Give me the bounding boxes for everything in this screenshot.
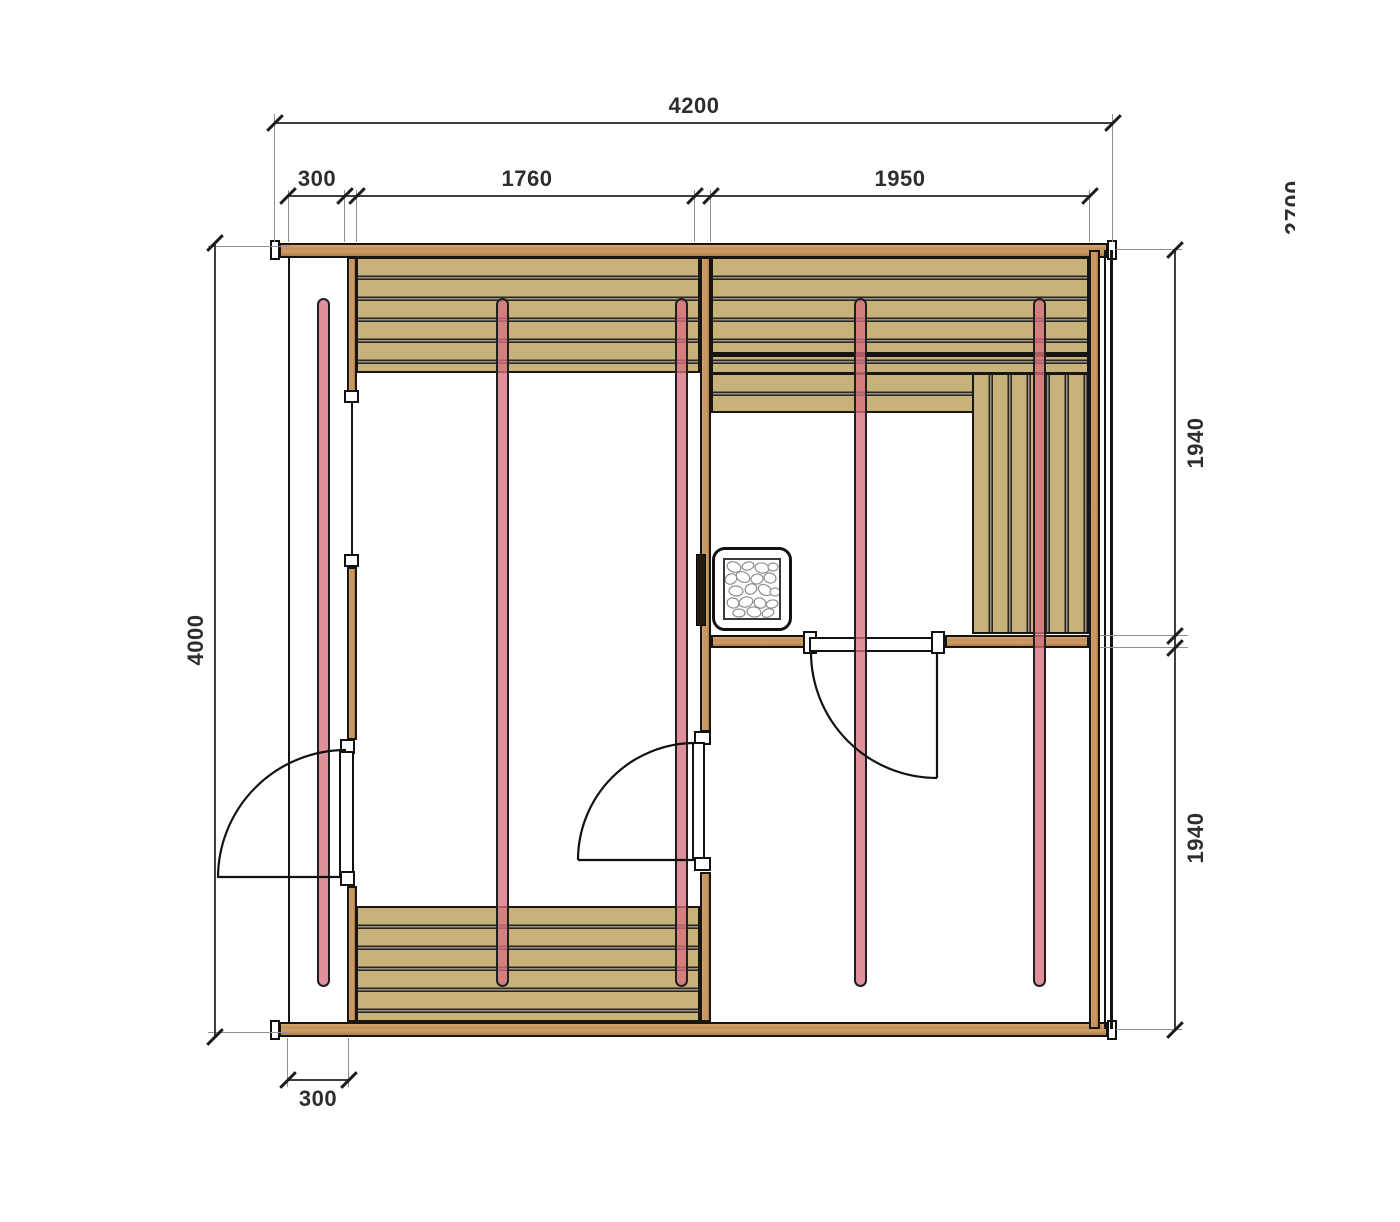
top-wall-left-cap (270, 240, 280, 260)
dim-label-clipped-wrapper: 2700 (1280, 140, 1295, 237)
bottom-wall-log (279, 1022, 1108, 1037)
sauna-door-leaf (809, 637, 937, 652)
dim-label-right-lower: 1940 (1183, 813, 1209, 864)
dim-label-bottom-offset: 300 (299, 1086, 337, 1112)
sauna-heater (712, 547, 792, 631)
interior-wall-vertical-lower (700, 872, 711, 1022)
ext-line-left-top (208, 246, 290, 247)
left-wall-post-lower (347, 886, 357, 1022)
dim-label-left-offset: 300 (298, 166, 336, 192)
interior-wall-vertical-upper (700, 257, 711, 732)
left-wall-cap-2 (344, 554, 359, 567)
dim-label-room-left: 1760 (502, 166, 553, 192)
interior-wall-horizontal-east (945, 635, 1089, 648)
dim-label-total-width: 4200 (669, 93, 720, 119)
top-wall-log (279, 243, 1108, 258)
right-wall (1089, 250, 1100, 1029)
dim-line-top-total (275, 122, 1113, 124)
heater-stones-icon (725, 560, 779, 618)
bench-top-right-lower-tier (711, 373, 974, 413)
dim-label-total-depth: 4000 (183, 615, 209, 666)
middle-door-leaf (692, 742, 705, 860)
right-outer-face-line-1 (1104, 250, 1106, 1029)
heater-heat-shield (696, 554, 706, 626)
glass-panel-strip-1 (317, 298, 330, 987)
bench-right-vertical (972, 373, 1089, 634)
left-wall-post-middle (347, 567, 357, 740)
ext-line-top-right (1112, 114, 1113, 242)
heater-stone-basket (723, 558, 781, 620)
dim-label-clipped-side: 2700 (1280, 180, 1295, 235)
bottom-wall-left-cap (270, 1020, 280, 1040)
right-outer-face-line-2 (1110, 250, 1113, 1029)
glass-panel-strip-2 (496, 298, 509, 987)
interior-wall-horizontal-west (711, 635, 806, 648)
sauna-door-swing-arc (811, 652, 937, 778)
left-wall-post-upper (347, 257, 357, 392)
sauna-door-jamb-right (931, 631, 945, 654)
left-wall-window-line (351, 403, 353, 555)
dim-line-bottom-offset (288, 1079, 349, 1081)
glass-panel-strip-5 (1033, 298, 1046, 987)
left-wall-cap-1 (344, 390, 359, 403)
exterior-door-leaf (339, 751, 354, 877)
exterior-door-jamb-bottom (340, 871, 355, 886)
dim-label-room-right: 1950 (875, 166, 926, 192)
bench-top-left (356, 257, 700, 373)
dim-label-right-upper: 1940 (1183, 418, 1209, 469)
bench-bottom-left (356, 906, 700, 1022)
dim-line-right (1174, 250, 1176, 1030)
glass-panel-strip-4 (854, 298, 867, 987)
left-glass-front-line (288, 257, 290, 1023)
floor-plan-canvas: 4200 300 1760 1950 4000 1940 1940 2700 3… (0, 0, 1400, 1222)
glass-panel-strip-3 (675, 298, 688, 987)
dim-line-left-total (214, 243, 216, 1037)
dim-line-top-segments (288, 195, 1090, 197)
ext-line-top-left (274, 114, 275, 242)
middle-door-jamb-bottom (694, 857, 711, 871)
